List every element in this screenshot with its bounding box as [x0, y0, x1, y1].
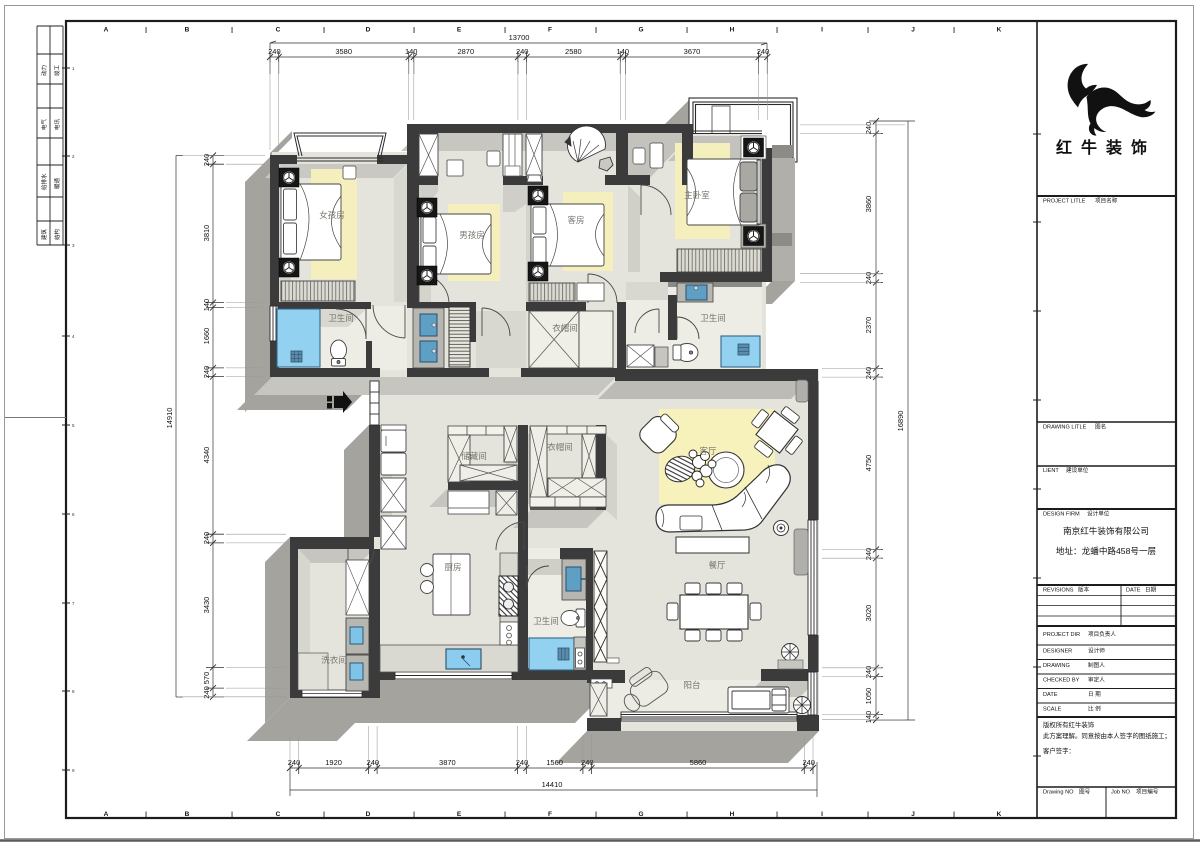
svg-text:|: | [145, 811, 147, 818]
svg-text:13700: 13700 [509, 33, 530, 42]
svg-text:K: K [997, 27, 1002, 34]
svg-text:E: E [457, 811, 462, 818]
svg-text:PROJECT LITLE: PROJECT LITLE [1043, 199, 1086, 205]
svg-text:B: B [185, 27, 190, 34]
svg-text:2580: 2580 [565, 47, 582, 56]
svg-text:4340: 4340 [202, 447, 211, 464]
svg-text:男孩房: 男孩房 [459, 230, 485, 240]
svg-text:电讯: 电讯 [53, 118, 61, 130]
svg-text:|: | [776, 27, 778, 34]
svg-text:CHECKED BY: CHECKED BY [1043, 678, 1080, 684]
svg-text:阳台: 阳台 [683, 680, 700, 690]
svg-text:女孩房: 女孩房 [319, 210, 345, 220]
svg-text:2370: 2370 [864, 317, 873, 334]
svg-text:|: | [231, 27, 233, 34]
svg-text:SCALE: SCALE [1043, 707, 1062, 713]
svg-text:|: | [504, 811, 506, 818]
svg-text:给排水: 给排水 [40, 173, 48, 190]
svg-text:|: | [323, 811, 325, 818]
svg-text:240: 240 [516, 47, 529, 56]
svg-text:电气: 电气 [40, 118, 48, 130]
svg-text:3870: 3870 [439, 758, 456, 767]
svg-text:J: J [911, 811, 915, 818]
svg-text:动力: 动力 [40, 65, 48, 76]
svg-text:REVISIONS: REVISIONS [1043, 588, 1074, 594]
svg-text:F: F [548, 27, 552, 34]
svg-text:240: 240 [202, 366, 211, 379]
svg-text:2870: 2870 [457, 47, 474, 56]
svg-text:项目编号: 项目编号 [1136, 788, 1159, 796]
svg-text:3020: 3020 [864, 605, 873, 622]
svg-text:|: | [413, 27, 415, 34]
svg-text:|: | [595, 811, 597, 818]
svg-text:设计单位: 设计单位 [1087, 510, 1110, 518]
svg-text:DATE: DATE [1126, 588, 1141, 594]
svg-text:1920: 1920 [325, 758, 342, 767]
svg-text:LIENT: LIENT [1043, 468, 1059, 474]
svg-text:客厅: 客厅 [699, 446, 717, 456]
svg-text:此方案理解。同意按由本人签字的图纸施工；: 此方案理解。同意按由本人签字的图纸施工； [1043, 731, 1171, 740]
svg-text:版权所有红牛装饰: 版权所有红牛装饰 [1043, 720, 1095, 729]
svg-text:3580: 3580 [335, 47, 352, 56]
svg-text:I: I [821, 811, 823, 818]
svg-text:项目名称: 项目名称 [1095, 197, 1118, 205]
svg-text:竣工: 竣工 [53, 64, 61, 76]
svg-text:240: 240 [864, 122, 873, 135]
svg-text:G: G [638, 27, 643, 34]
svg-text:240: 240 [757, 47, 770, 56]
svg-text:|: | [867, 811, 869, 818]
svg-text:1560: 1560 [546, 758, 563, 767]
svg-text:240: 240 [288, 758, 301, 767]
svg-text:4750: 4750 [864, 455, 873, 472]
svg-text:|: | [595, 27, 597, 34]
svg-text:|: | [867, 27, 869, 34]
svg-text:建筑: 建筑 [40, 228, 48, 240]
svg-text:设计师: 设计师 [1088, 647, 1105, 655]
svg-text:E: E [457, 27, 462, 34]
svg-text:|: | [953, 811, 955, 818]
svg-text:B: B [185, 811, 190, 818]
svg-text:衣帽间: 衣帽间 [547, 442, 573, 452]
svg-text:1660: 1660 [202, 328, 211, 345]
svg-text:F: F [548, 811, 552, 818]
svg-text:南京红牛装饰有限公司: 南京红牛装饰有限公司 [1063, 525, 1149, 536]
svg-text:H: H [730, 27, 735, 34]
svg-text:暖通: 暖通 [53, 177, 61, 189]
svg-text:|: | [953, 27, 955, 34]
svg-text:制图人: 制图人 [1088, 661, 1105, 669]
svg-text:140: 140 [864, 711, 873, 724]
svg-text:版本: 版本 [1078, 586, 1090, 594]
svg-text:140: 140 [617, 47, 630, 56]
svg-text:储藏间: 储藏间 [461, 451, 487, 461]
svg-text:客房: 客房 [567, 215, 584, 225]
svg-text:DESIGNER: DESIGNER [1043, 649, 1072, 655]
svg-text:DESIGN FIRM: DESIGN FIRM [1043, 512, 1080, 518]
svg-text:|: | [145, 27, 147, 34]
svg-text:日 期: 日 期 [1088, 691, 1101, 698]
svg-text:审定人: 审定人 [1088, 676, 1105, 684]
svg-text:|: | [231, 811, 233, 818]
svg-text:|: | [504, 27, 506, 34]
svg-text:3670: 3670 [684, 47, 701, 56]
svg-text:主卧室: 主卧室 [684, 190, 710, 200]
svg-text:客户签字：: 客户签字： [1043, 746, 1075, 755]
svg-text:图名: 图名 [1095, 423, 1106, 431]
svg-text:240: 240 [202, 532, 211, 545]
svg-text:D: D [366, 811, 371, 818]
svg-text:卫生间: 卫生间 [700, 313, 726, 323]
svg-text:|: | [413, 811, 415, 818]
svg-text:140: 140 [405, 47, 418, 56]
svg-text:140: 140 [202, 299, 211, 312]
svg-text:1050: 1050 [864, 688, 873, 705]
svg-text:3810: 3810 [202, 225, 211, 242]
svg-text:A: A [104, 811, 109, 818]
svg-text:项目负责人: 项目负责人 [1088, 630, 1116, 638]
svg-text:卫生间: 卫生间 [328, 313, 354, 323]
svg-text:PROJECT DIR: PROJECT DIR [1043, 632, 1080, 638]
svg-text:A: A [104, 27, 109, 34]
svg-text:餐厅: 餐厅 [708, 560, 726, 570]
svg-text:Job NO: Job NO [1111, 790, 1131, 796]
svg-text:14410: 14410 [542, 780, 563, 789]
svg-text:570: 570 [202, 672, 211, 685]
svg-text:3430: 3430 [202, 597, 211, 614]
svg-text:|: | [686, 27, 688, 34]
svg-text:|: | [776, 811, 778, 818]
svg-text:厨房: 厨房 [444, 562, 461, 572]
svg-text:J: J [911, 27, 915, 34]
svg-text:建设单位: 建设单位 [1066, 466, 1089, 474]
svg-text:比 例: 比 例 [1088, 705, 1101, 713]
svg-text:H: H [730, 811, 735, 818]
svg-text:3860: 3860 [864, 196, 873, 213]
svg-text:C: C [276, 811, 281, 818]
svg-text:DATE: DATE [1043, 692, 1058, 698]
svg-text:图号: 图号 [1079, 788, 1091, 796]
svg-text:C: C [276, 27, 281, 34]
svg-text:5860: 5860 [690, 758, 707, 767]
svg-text:K: K [997, 811, 1002, 818]
svg-text:结构: 结构 [53, 228, 61, 240]
svg-text:D: D [366, 27, 371, 34]
svg-text:240: 240 [268, 47, 281, 56]
svg-text:DRAWING LITLE: DRAWING LITLE [1043, 425, 1087, 431]
svg-text:I: I [821, 27, 823, 34]
svg-text:|: | [323, 27, 325, 34]
svg-text:|: | [686, 811, 688, 818]
svg-text:红牛装饰: 红牛装饰 [1056, 138, 1156, 157]
svg-text:Drawing NO: Drawing NO [1043, 790, 1074, 796]
svg-text:G: G [638, 811, 643, 818]
svg-text:卫生间: 卫生间 [533, 616, 559, 626]
svg-text:洗衣间: 洗衣间 [321, 655, 347, 665]
svg-text:16890: 16890 [896, 411, 905, 432]
svg-text:日期: 日期 [1145, 587, 1157, 594]
svg-text:DRAWING: DRAWING [1043, 663, 1070, 669]
svg-text:14910: 14910 [165, 408, 174, 429]
svg-text:地址：龙蟠中路458号一层: 地址：龙蟠中路458号一层 [1056, 545, 1157, 556]
svg-text:衣帽间: 衣帽间 [552, 323, 578, 333]
